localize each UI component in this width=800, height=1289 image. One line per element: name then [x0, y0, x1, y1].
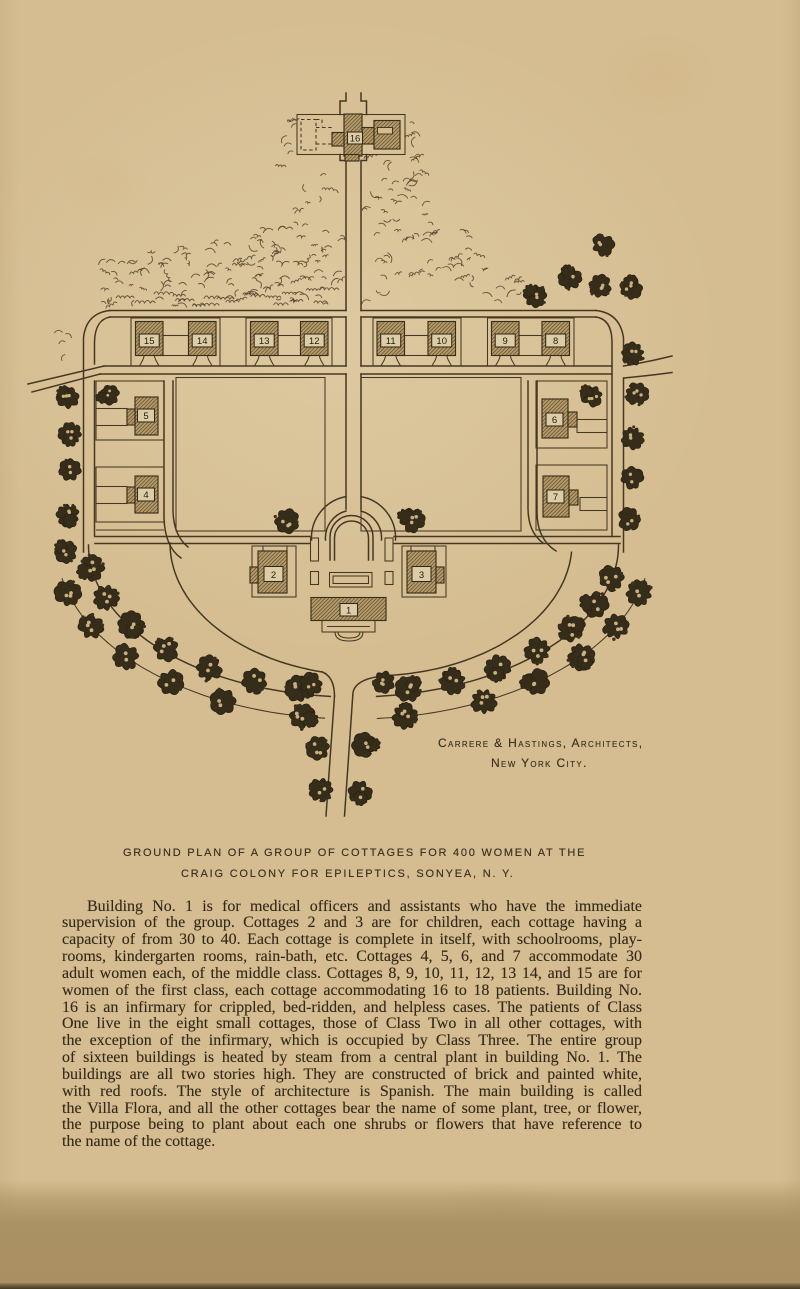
svg-text:12: 12	[309, 336, 320, 347]
svg-text:9: 9	[503, 336, 508, 347]
svg-text:14: 14	[197, 336, 208, 347]
svg-text:10: 10	[436, 336, 447, 347]
svg-text:8: 8	[553, 336, 558, 347]
svg-text:16: 16	[350, 133, 361, 144]
svg-text:4: 4	[143, 490, 148, 501]
svg-text:6: 6	[552, 415, 557, 426]
svg-text:13: 13	[259, 336, 270, 347]
svg-text:2: 2	[271, 570, 276, 581]
svg-text:3: 3	[419, 570, 424, 581]
svg-text:1: 1	[346, 605, 351, 616]
svg-text:11: 11	[386, 336, 396, 347]
svg-text:5: 5	[143, 411, 148, 422]
svg-text:15: 15	[144, 336, 155, 347]
svg-text:7: 7	[553, 492, 558, 503]
